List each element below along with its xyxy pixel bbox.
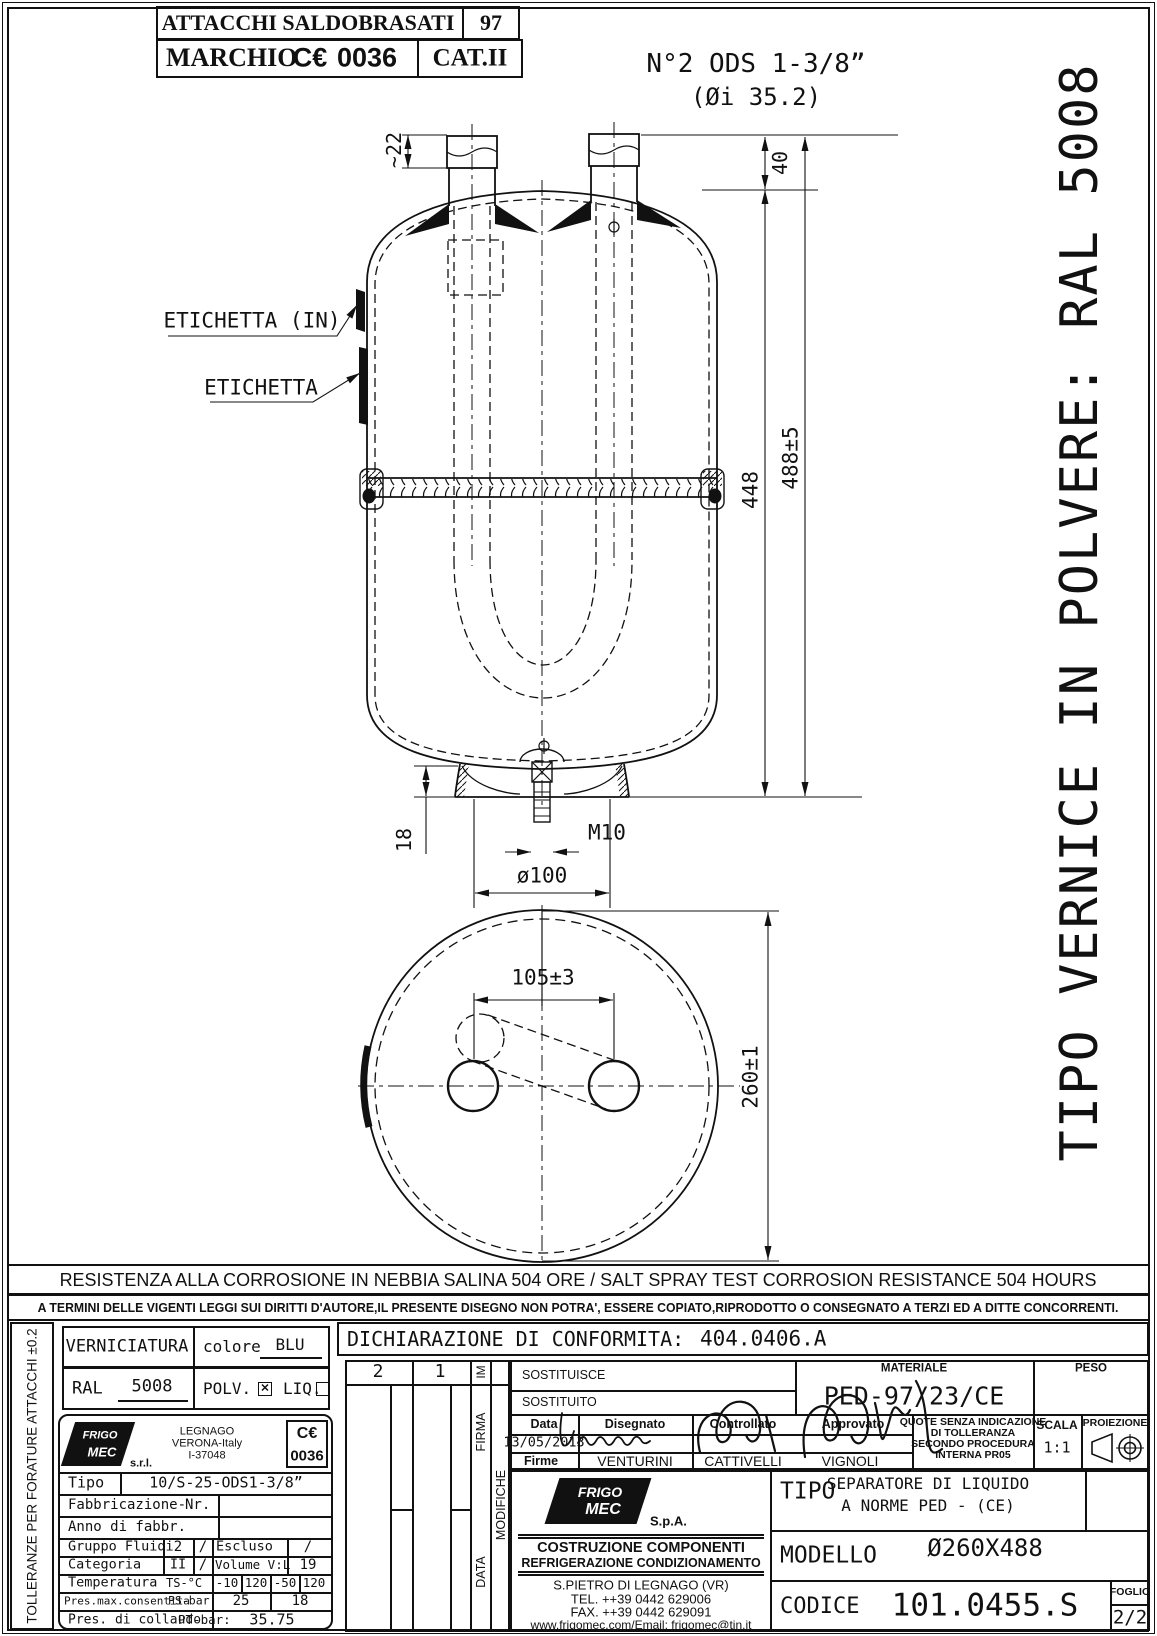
company-rule [518,1571,764,1573]
codice-label: CODICE [780,1596,859,1618]
signatures-overlay [510,1355,1150,1475]
nameplate-t1: -10 [216,1577,239,1590]
nameplate-col-line [299,1574,301,1592]
nameplate-volume-value: 19 [300,1558,317,1572]
nameplate-categoria-slash: / [199,1558,207,1572]
nameplate-region: VERONA-Italy [172,1439,242,1450]
company-line2: REFRIGERAZIONE CONDIZIONAMENTO [521,1557,760,1570]
label-etichetta-in: ETICHETTA (IN) [163,311,340,332]
nameplate-ce-number: 0036 [290,1449,323,1464]
revision-col2: 2 [373,1363,384,1381]
colore-label: colore [203,1339,261,1355]
nameplate-col-line [120,1472,122,1494]
dim-260: 260±1 [741,1042,762,1111]
nameplate-temperatura-label: Temperatura [68,1576,157,1590]
nameplate-fabbricazione-label: Fabbricazione- [68,1498,186,1512]
colore-underline [260,1357,322,1359]
revision-line [490,1360,492,1632]
revision-col1: 1 [435,1363,446,1381]
nameplate-row-line [58,1494,333,1496]
company-logo-line1: FRIGO [578,1485,622,1499]
liq-checkbox [316,1382,330,1396]
colore-value: BLU [276,1337,305,1353]
nameplate-col-line [218,1494,220,1538]
nameplate-logo-line1: FRIGO [83,1431,118,1442]
block-line [770,1530,1149,1532]
nameplate-t4: 120 [303,1577,326,1590]
revision-line [390,1509,412,1511]
company-line1: COSTRUZIONE COMPONENTI [537,1541,745,1556]
drawing-sheet: ATTACCHI SALDOBRASATI 97 MARCHIO C€ 0036… [0,0,1157,1636]
label-etichetta: ETICHETTA [204,378,318,399]
revision-modifiche-label: MODIFICHE [495,1470,508,1540]
tipo-line2: A NORME PED - (CE) [841,1498,1014,1514]
nameplate-col-line [270,1574,272,1610]
dimension-lines [168,135,898,1261]
nameplate-gruppo-slash: / [199,1540,207,1554]
ods-inner-diameter-label: (Øi 35.2) [691,85,821,109]
dim-m10: M10 [588,823,626,844]
revision-line [412,1360,414,1632]
technical-drawing-canvas [0,0,1157,1270]
signature-approvato [804,1381,942,1457]
nameplate-ps-v2: 18 [292,1594,309,1608]
company-rule [518,1574,764,1576]
nameplate-pt-label: PT-bar: [178,1614,231,1627]
revision-line [345,1384,510,1386]
nameplate-logo-line2: MEC [88,1446,117,1459]
revision-strip [345,1360,510,1632]
nameplate-categoria-value: II [170,1558,186,1572]
block-line [770,1580,1149,1582]
foglio-value: 2/2 [1113,1609,1147,1628]
modello-label: MODELLO [780,1545,877,1568]
modello-value: Ø260X488 [927,1536,1043,1560]
revision-im-label: IM [475,1365,487,1378]
datum-marks [539,219,619,1006]
nameplate-pt-value: 35.75 [249,1613,294,1628]
ral-underline [118,1400,188,1402]
company-rule [518,1534,764,1536]
nameplate-tipo-value: 10/S-25-ODS1-3/8” [149,1476,303,1491]
nameplate-row-line [58,1516,333,1518]
nameplate-t3: -50 [274,1577,297,1590]
nameplate-col-line [241,1574,243,1592]
nameplate-ce-mark-icon: C€ [297,1426,317,1442]
company-web: www.frigomec.com/Email: frigomec@tin.it [531,1619,752,1631]
copyright-banner-text: A TERMINI DELLE VIGENTI LEGGI SUI DIRITT… [38,1302,1119,1315]
signature-disegnato [560,1413,650,1446]
ral-value: 5008 [132,1379,173,1396]
nameplate-zip: I-37048 [188,1451,225,1462]
nameplate-t2: 120 [245,1577,268,1590]
polv-checkbox-mark: ✕ [260,1384,269,1395]
nameplate-anno-label: Anno di fabbr. [68,1520,186,1534]
tolerance-note-text: TOLLERANZE PER FORATURE ATTACCHI ±0.2 [25,1328,39,1623]
foglio-label: FOGLIO [1110,1587,1150,1598]
tipo-line1: SEPARATORE DI LIQUIDO [827,1476,1029,1492]
ods-connections-label: N°2 ODS 1-3/8” [646,51,865,77]
nameplate-gruppo-value: 2 [174,1540,182,1554]
nameplate-srl: s.r.l. [130,1459,152,1470]
block-line [1110,1604,1149,1606]
dim-40: 40 [770,151,790,175]
nameplate-ps-v1: 25 [233,1594,250,1608]
company-rule [518,1537,764,1539]
dim-448: 448 [741,468,762,512]
dim-tube-stickout: ~22 [384,132,404,168]
nameplate-escluso-value: / [304,1540,312,1554]
company-line3: S.PIETRO DI LEGNAGO (VR) [553,1579,729,1592]
ral-divider [193,1367,195,1410]
dim-105: 105±3 [511,968,574,989]
nameplate-city: LEGNAGO [180,1427,234,1438]
nameplate-ps-label: PS-bar: [168,1595,216,1607]
nameplate-volume-label: Volume V:L [215,1559,290,1572]
signature-controllato [698,1402,775,1452]
revision-data-label: DATA [475,1556,488,1587]
verniciatura-label: VERNICIATURA [66,1339,189,1356]
weld-fills [356,200,722,504]
dim-18: 18 [394,828,414,852]
nameplate-col-line [193,1538,195,1574]
company-logo-line2: MEC [585,1502,621,1518]
block-line [770,1470,772,1632]
nameplate-categoria-label: Categoria [68,1558,141,1572]
nameplate-gruppo-label: Gruppo Fluidi [68,1540,174,1554]
company-fax: FAX. ++39 0442 629091 [571,1606,712,1619]
conformity-value: 404.0406.A [700,1329,826,1350]
dim-488: 488±5 [781,423,802,492]
dim-d100: ø100 [517,866,568,887]
block-line [1085,1470,1087,1530]
nameplate-tipo-label: Tipo [68,1476,104,1491]
revision-line [470,1360,472,1632]
centerlines [358,122,740,1266]
polv-label: POLV. [203,1381,251,1397]
ral-label: RAL [72,1381,103,1398]
verniciatura-divider [193,1326,195,1368]
codice-value: 101.0455.S [892,1591,1079,1622]
resistance-banner-text: RESISTENZA ALLA CORROSIONE IN NEBBIA SAL… [60,1271,1097,1290]
nameplate-nr-label: Nr. [185,1498,210,1512]
nameplate-escluso-label: Escluso [216,1540,273,1554]
revision-line [450,1509,470,1511]
nameplate-ts-label: TS-°C [166,1577,202,1589]
company-spa: S.p.A. [650,1515,687,1528]
revision-firma-label: FIRMA [475,1413,488,1452]
conformity-label: DICHIARAZIONE DI CONFORMITA: [347,1329,684,1349]
